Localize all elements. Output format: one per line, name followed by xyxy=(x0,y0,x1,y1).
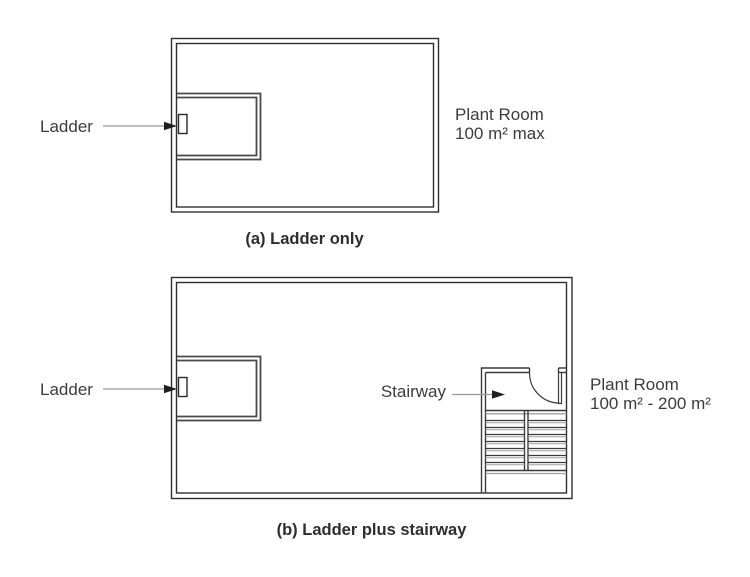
plan-b-ladder-enclosure-inner xyxy=(177,361,257,417)
plan-a-inner-wall xyxy=(177,44,434,208)
plan-b-room-name: Plant Room xyxy=(590,375,711,394)
plan-a-ladder-enclosure-inner xyxy=(177,98,257,156)
plan-b-ladder-label: Ladder xyxy=(40,380,93,399)
plan-drawings xyxy=(0,0,750,577)
plan-a-outer-wall xyxy=(172,39,439,213)
plan-a-ladder-symbol xyxy=(179,115,188,134)
plan-a-room-area: 100 m² max xyxy=(455,124,545,143)
plan-b-ladder-symbol xyxy=(179,378,188,397)
plan-b-room-label: Plant Room 100 m² - 200 m² xyxy=(590,375,711,413)
plan-b-outer-wall xyxy=(172,278,573,499)
stair-treads-right-shadow xyxy=(528,423,567,465)
plan-a-room-name: Plant Room xyxy=(455,105,545,124)
plan-a-ladder-label: Ladder xyxy=(40,117,93,136)
plan-b-stairway-arrowhead-icon xyxy=(492,390,505,398)
door-swing-arc xyxy=(529,373,559,404)
stair-treads-right xyxy=(528,421,567,463)
plan-a-ladder-enclosure-outer xyxy=(177,94,261,160)
plan-a xyxy=(103,39,439,213)
plan-b xyxy=(103,278,572,499)
plan-b-inner-wall xyxy=(177,283,567,494)
plan-a-caption: (a) Ladder only xyxy=(171,230,438,249)
plan-a-room-label: Plant Room 100 m² max xyxy=(455,105,545,143)
plan-b-ladder-enclosure-outer xyxy=(177,357,261,421)
stair-treads-left xyxy=(486,421,525,463)
plan-b-stairway-label: Stairway xyxy=(374,382,446,401)
plan-a-ladder-arrowhead-icon xyxy=(164,122,177,130)
plan-b-stairs xyxy=(486,411,567,474)
plan-b-ladder-arrowhead-icon xyxy=(164,385,177,393)
door-leaf xyxy=(559,373,562,404)
stair-treads-left-shadow xyxy=(486,423,525,465)
figure-canvas: Ladder Plant Room 100 m² max (a) Ladder … xyxy=(0,0,750,577)
plan-b-room-area: 100 m² - 200 m² xyxy=(590,394,711,413)
plan-b-caption: (b) Ladder plus stairway xyxy=(171,521,572,540)
